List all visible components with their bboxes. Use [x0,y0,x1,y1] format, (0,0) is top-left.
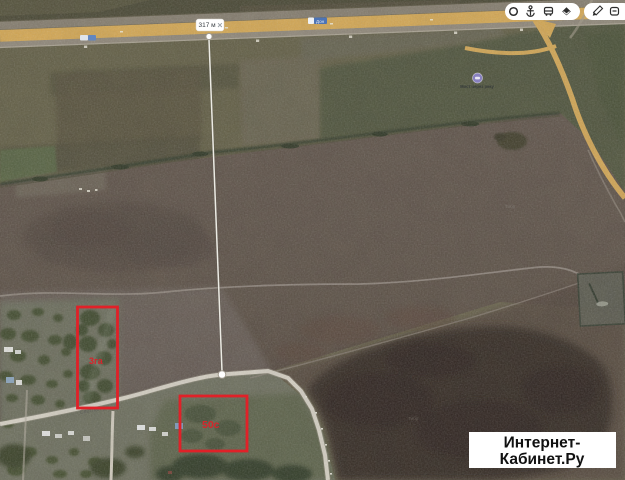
svg-text:Дон: Дон [316,19,325,24]
svg-text:Интернет-: Интернет- [504,435,581,452]
svg-text:3га: 3га [89,356,104,366]
svg-text:Мост через реку: Мост через реку [460,84,494,89]
svg-text:50с: 50с [202,419,220,431]
svg-text:Кабинет.Ру: Кабинет.Ру [500,451,585,468]
svg-text:317 м: 317 м [199,22,217,29]
